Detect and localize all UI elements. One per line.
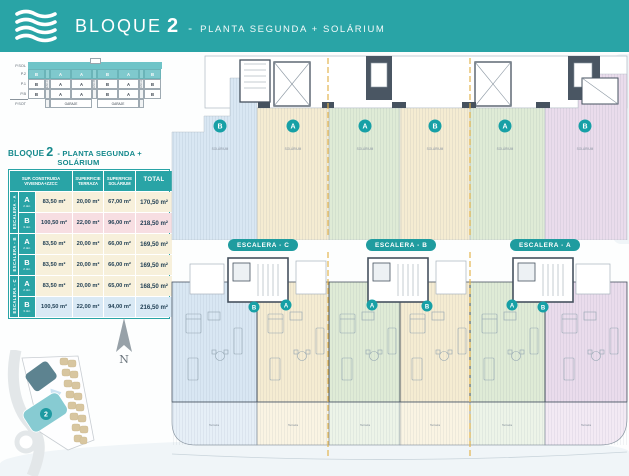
col-header-built: SUP. CONSTRUIDA VIVIENDA+ZZCC xyxy=(10,171,72,191)
section-cell: A xyxy=(71,79,92,89)
col-header-total: TOTAL xyxy=(136,171,172,191)
wave-logo xyxy=(15,8,57,44)
plan-sheet: BLOQUE 2 - PLANTA SEGUNDA + SOLÁRIUM P.S… xyxy=(0,0,629,476)
value-solarium: 67,00 m² xyxy=(104,192,135,212)
value-built: 100,50 m² xyxy=(36,213,72,233)
table-grid: SUP. CONSTRUIDA VIVIENDA+ZZCC SUPERFICIE… xyxy=(8,169,170,319)
svg-text:SOLÁRIUM: SOLÁRIUM xyxy=(212,147,229,151)
section-cell: A xyxy=(118,79,139,89)
section-cell: B xyxy=(97,69,118,79)
value-solarium: 66,00 m² xyxy=(104,255,135,275)
title-block-word: BLOQUE xyxy=(75,16,162,37)
svg-text:B: B xyxy=(425,304,430,310)
group-label-escalera-b: ESCALERA - B xyxy=(10,234,18,275)
table-title: BLOQUE 2 - PLANTA SEGUNDA + SOLÁRIUM xyxy=(8,145,170,167)
section-cell: B xyxy=(97,89,118,99)
table-title-block: BLOQUE xyxy=(8,149,44,158)
svg-text:B: B xyxy=(252,305,257,311)
section-cell: A xyxy=(71,89,92,99)
block-2-badge-number: 2 xyxy=(44,412,48,419)
value-terrace: 22,00 m² xyxy=(73,297,103,317)
page-title: BLOQUE 2 - PLANTA SEGUNDA + SOLÁRIUM xyxy=(75,15,385,38)
section-cell: B xyxy=(144,89,161,99)
svg-text:SOLÁRIUM: SOLÁRIUM xyxy=(285,147,302,151)
section-cell: A xyxy=(50,69,71,79)
garage-cell: GARAJE xyxy=(50,99,92,108)
unit-letter-cell: A2 dor. xyxy=(19,234,35,254)
value-solarium: 65,00 m² xyxy=(104,276,135,296)
value-built: 83,50 m² xyxy=(36,276,72,296)
svg-text:Terraza: Terraza xyxy=(288,423,298,427)
col-header-terrace: SUPERFICIE TERRAZA xyxy=(73,171,103,191)
svg-text:A: A xyxy=(284,303,289,309)
svg-text:SOLÁRIUM: SOLÁRIUM xyxy=(427,147,444,151)
section-cell: B xyxy=(144,69,161,79)
stair-module-c xyxy=(228,258,288,302)
svg-text:Terraza: Terraza xyxy=(430,423,440,427)
value-terrace: 20,00 m² xyxy=(73,234,103,254)
group-label-escalera-c: ESCALERA - C xyxy=(10,276,18,317)
floor-label: P.B xyxy=(10,89,28,99)
col-header-solarium: SUPERFICIE SOLÁRIUM xyxy=(104,171,135,191)
section-cell: A xyxy=(118,89,139,99)
section-cell: B xyxy=(97,79,118,89)
svg-text:B: B xyxy=(582,124,587,131)
value-total: 170,50 m² xyxy=(136,192,172,212)
section-cell: A xyxy=(71,69,92,79)
value-solarium: 94,00 m² xyxy=(104,297,135,317)
svg-text:Terraza: Terraza xyxy=(360,423,370,427)
header-bar: BLOQUE 2 - PLANTA SEGUNDA + SOLÁRIUM xyxy=(0,0,629,52)
unit-letter-cell: A2 dor. xyxy=(19,192,35,212)
section-cell: A xyxy=(118,69,139,79)
svg-text:A: A xyxy=(362,124,367,131)
svg-text:Terraza: Terraza xyxy=(502,423,512,427)
svg-text:Terraza: Terraza xyxy=(209,423,219,427)
unit-letter-cell: B3 dor. xyxy=(19,297,35,317)
svg-text:SOLÁRIUM: SOLÁRIUM xyxy=(577,147,594,151)
value-built: 83,50 m² xyxy=(36,234,72,254)
title-subtitle: PLANTA SEGUNDA + SOLÁRIUM xyxy=(200,24,385,35)
escalera-b-pill: ESCALERA - B xyxy=(366,239,436,251)
escalera-a-pill: ESCALERA - A xyxy=(510,239,580,251)
section-cell: B xyxy=(144,79,161,89)
value-terrace: 20,00 m² xyxy=(73,255,103,275)
ground-line xyxy=(172,452,627,460)
solarium-floor-plan: B A A B A B SOLÁRIUM SOLÁRIUM SOLÁRIUM S… xyxy=(170,54,629,240)
section-cell: B xyxy=(28,89,45,99)
floor-label: P.2 xyxy=(10,69,28,79)
svg-text:B: B xyxy=(541,305,546,311)
section-cell: B xyxy=(28,69,45,79)
value-total: 168,50 m² xyxy=(136,276,172,296)
value-built: 100,50 m² xyxy=(36,297,72,317)
unit-letter-cell: B3 dor. xyxy=(19,213,35,233)
section-cell: A xyxy=(50,89,71,99)
value-terrace: 20,00 m² xyxy=(73,276,103,296)
section-cell: A xyxy=(50,79,71,89)
table-title-rest: - PLANTA SEGUNDA + SOLÁRIUM xyxy=(57,149,170,167)
group-label-escalera-a: ESCALERA - A xyxy=(10,192,18,233)
unit-letter-cell: B2 dor. xyxy=(19,255,35,275)
value-built: 83,50 m² xyxy=(36,255,72,275)
value-total: 218,50 m² xyxy=(136,213,172,233)
roof-bar xyxy=(28,62,162,69)
value-total: 216,50 m² xyxy=(136,297,172,317)
value-solarium: 66,00 m² xyxy=(104,234,135,254)
second-floor-plan: B A A B A B Terraza Terraza Terraza Terr… xyxy=(170,252,629,468)
svg-text:A: A xyxy=(510,303,515,309)
title-separator: - xyxy=(188,21,194,35)
garage-cell: GARAJE xyxy=(97,99,139,108)
svg-text:A: A xyxy=(370,303,375,309)
areas-table: BLOQUE 2 - PLANTA SEGUNDA + SOLÁRIUM SUP… xyxy=(8,145,170,319)
floor-label: P.SOT xyxy=(10,99,28,108)
svg-text:Terraza: Terraza xyxy=(581,423,591,427)
value-terrace: 22,00 m² xyxy=(73,213,103,233)
value-total: 169,50 m² xyxy=(136,255,172,275)
site-location-map: 2 xyxy=(6,350,166,476)
escalera-c-pill: ESCALERA - C xyxy=(228,239,298,251)
svg-text:SOLÁRIUM: SOLÁRIUM xyxy=(357,147,374,151)
value-terrace: 20,00 m² xyxy=(73,192,103,212)
table-title-number: 2 xyxy=(46,145,53,159)
svg-text:A: A xyxy=(502,124,507,131)
svg-text:B: B xyxy=(217,124,222,131)
lift-overrun xyxy=(90,58,101,64)
value-total: 169,50 m² xyxy=(136,234,172,254)
stair-module-b xyxy=(368,258,428,302)
unit-letter-cell: A2 dor. xyxy=(19,276,35,296)
value-solarium: 96,00 m² xyxy=(104,213,135,233)
svg-text:SOLÁRIUM: SOLÁRIUM xyxy=(497,147,514,151)
svg-text:B: B xyxy=(432,124,437,131)
floor-label: P.1 xyxy=(10,79,28,89)
stair-module-a xyxy=(513,258,573,302)
building-section-diagram: P.SOL P.2 B A A B A B P.1 B ESC.C A A ES… xyxy=(10,62,162,108)
floor-label: P.SOL xyxy=(10,62,28,69)
section-cell: B xyxy=(28,79,45,89)
roundabout xyxy=(17,433,35,451)
value-built: 83,50 m² xyxy=(36,192,72,212)
svg-text:A: A xyxy=(290,124,295,131)
title-block-number: 2 xyxy=(167,15,180,38)
